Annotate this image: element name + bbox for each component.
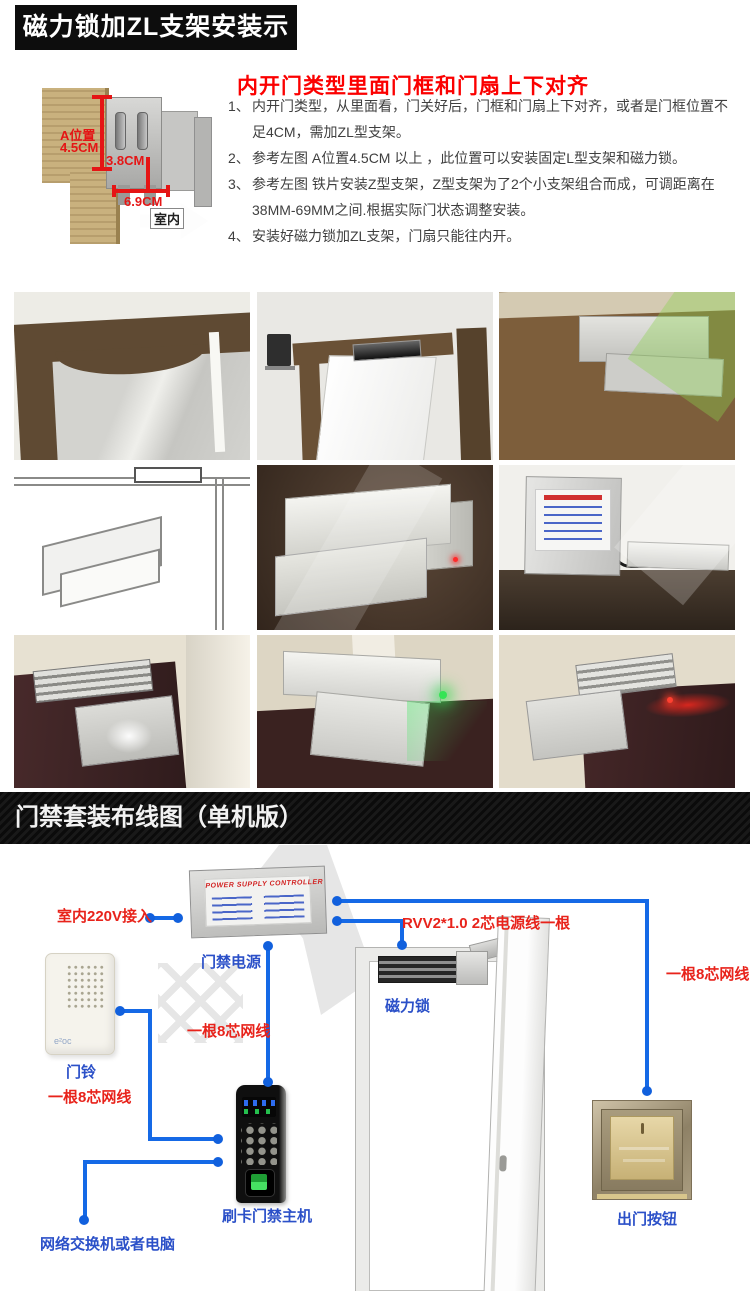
dim-b-value: 3.8CM: [106, 153, 144, 168]
wire-endpoint: [642, 1086, 652, 1096]
dim-c-value: 6.9CM: [124, 194, 162, 209]
label-power-cable: RVV2*1.0 2芯电源线一根: [402, 912, 570, 933]
wire-endpoint: [263, 941, 273, 951]
wire-endpoint: [79, 1215, 89, 1225]
wire-doorbell: [148, 1137, 218, 1141]
label-net8-right: 一根8芯网线: [666, 963, 749, 984]
label-psu: 门禁电源: [201, 951, 261, 972]
section1-title-bar: 磁力锁加ZL支架安装示意图: [15, 5, 297, 50]
photo-zl-bracket-cad-drawing: [14, 465, 250, 630]
wire-net8-right: [645, 901, 649, 1091]
label-maglock: 磁力锁: [385, 995, 430, 1016]
wire-endpoint: [332, 916, 342, 926]
key-slit-icon: [641, 1123, 644, 1134]
photo-maglock-installed-dark-door: [14, 635, 250, 788]
instruction-item: 1、 内开门类型，从里面看，门关好后，门框和门扇上下对齐，或者是门框位置不足4C…: [228, 93, 740, 145]
maglock-device: [378, 956, 460, 983]
photo-zl-bracket-kit-closeup: [257, 465, 493, 630]
photo-maglock-green-led: [257, 635, 493, 788]
reader-keypad: [241, 1123, 277, 1165]
wire-endpoint: [115, 1006, 125, 1016]
psu-label-panel: POWER SUPPLY CONTROLLER: [204, 875, 312, 927]
photo-gallery: [0, 292, 750, 788]
photo-maglock-red-led: [499, 635, 735, 788]
instruction-list: 1、 内开门类型，从里面看，门关好后，门框和门扇上下对齐，或者是门框位置不足4C…: [228, 93, 740, 249]
label-net8-mid: 一根8芯网线: [187, 1020, 270, 1041]
reader-screen: [242, 1097, 276, 1117]
wire-net8-right: [337, 899, 649, 903]
exit-button-device: [592, 1100, 692, 1200]
speaker-holes-icon: [66, 964, 106, 1010]
wire-endpoint: [397, 940, 407, 950]
wire-endpoint: [263, 1077, 273, 1087]
dim-a-value: 4.5CM: [60, 140, 98, 155]
wire-psu-to-reader: [266, 946, 270, 1082]
card-reader-device: [236, 1085, 286, 1203]
instruction-item: 4、 安装好磁力锁加ZL支架，门扇只能往内开。: [228, 223, 740, 249]
label-network: 网络交换机或者电脑: [40, 1233, 175, 1254]
wire-network: [83, 1160, 218, 1164]
instruction-item: 2、 参考左图 A位置4.5CM 以上 ，此位置可以安装固定L型支架和磁力锁。: [228, 145, 740, 171]
wire-doorbell: [148, 1009, 152, 1139]
wire-endpoint: [213, 1134, 223, 1144]
instruction-item: 3、 参考左图 铁片安装Z型支架，Z型支架为了2个小支架组合而成，可调距离在38…: [228, 171, 740, 223]
photo-wood-door-frame-arch-corner: [14, 292, 250, 460]
fingerprint-scanner-icon: [245, 1169, 275, 1197]
doorbell-logo: e²oc: [54, 1036, 72, 1046]
label-reader: 刷卡门禁主机: [222, 1205, 312, 1226]
wire-endpoint: [332, 896, 342, 906]
label-exit-button: 出门按钮: [617, 1208, 677, 1229]
label-doorbell: 门铃: [66, 1061, 96, 1082]
photo-open-door-with-maglock: [257, 292, 493, 460]
wire-network: [83, 1160, 87, 1220]
install-dimension-diagram: A位置 4.5CM 3.8CM 6.9CM 室内: [40, 85, 235, 247]
wire-power-cable: [337, 919, 404, 923]
photo-power-supply-with-maglock: [499, 465, 735, 630]
door-handle-icon: [499, 1155, 507, 1171]
label-mains: 室内220V接入: [57, 905, 152, 926]
wire-endpoint: [173, 913, 183, 923]
wiring-diagram: POWER SUPPLY CONTROLLER e²oc 室内220V接入 门禁…: [0, 845, 750, 1291]
maglock-armature: [456, 951, 488, 985]
wire-endpoint: [213, 1157, 223, 1167]
photo-zl-bracket-on-wood-door: [499, 292, 735, 460]
section2-banner: 门禁套装布线图（单机版）: [0, 792, 750, 844]
page: 磁力锁加ZL支架安装示意图 内开门类型里面门框和门扇上下对齐 A位置 4.5CM…: [0, 0, 750, 1291]
section2-banner-text: 门禁套装布线图（单机版）: [15, 804, 303, 831]
label-net8-left: 一根8芯网线: [48, 1086, 131, 1107]
power-supply-controller: POWER SUPPLY CONTROLLER: [189, 866, 327, 939]
indoor-label: 室内: [150, 208, 184, 229]
psu-title: POWER SUPPLY CONTROLLER: [205, 879, 309, 890]
doorbell-device: e²oc: [45, 953, 115, 1055]
